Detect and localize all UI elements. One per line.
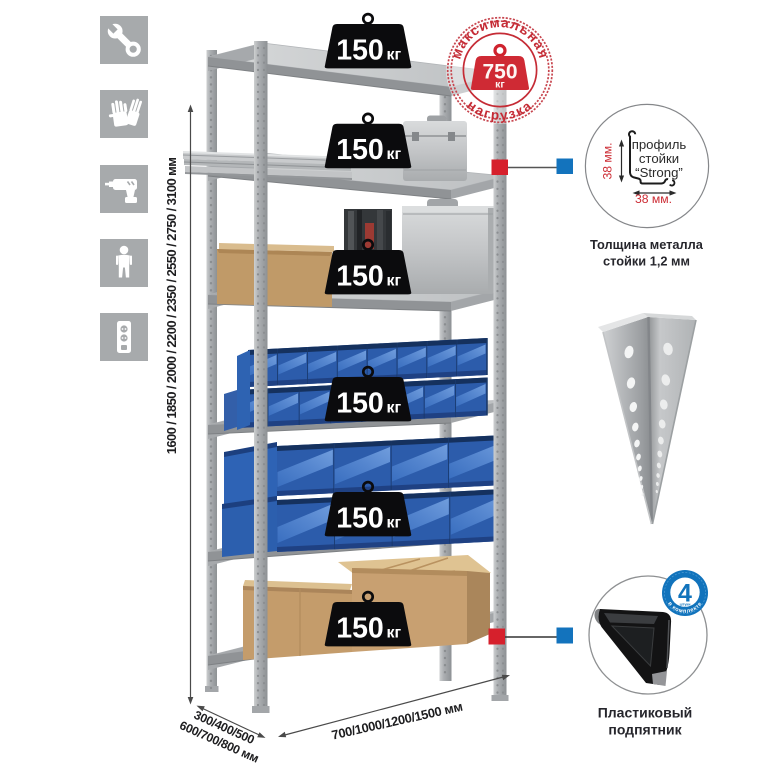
svg-text:подпятник: подпятник xyxy=(608,722,682,738)
svg-text:150: 150 xyxy=(336,387,384,419)
svg-text:кг: кг xyxy=(387,146,402,163)
svg-text:кг: кг xyxy=(387,272,402,289)
svg-text:38 мм.: 38 мм. xyxy=(601,142,615,179)
svg-text:Толщина металла: Толщина металла xyxy=(590,237,704,252)
svg-text:кг: кг xyxy=(387,46,402,63)
svg-text:профиль: профиль xyxy=(632,137,687,152)
svg-text:“Strong”: “Strong” xyxy=(635,165,683,180)
svg-text:штуки: штуки xyxy=(680,603,691,607)
svg-text:150: 150 xyxy=(336,134,384,166)
svg-text:кг: кг xyxy=(495,79,505,91)
svg-text:150: 150 xyxy=(336,502,384,534)
svg-text:кг: кг xyxy=(387,624,402,641)
svg-text:стойки 1,2 мм: стойки 1,2 мм xyxy=(603,254,690,269)
svg-text:стойки: стойки xyxy=(639,151,679,166)
svg-text:1600 / 1850 / 2000 / 2200 / 23: 1600 / 1850 / 2000 / 2200 / 2350 / 2550 … xyxy=(164,158,179,454)
svg-text:150: 150 xyxy=(336,612,384,644)
svg-text:Пластиковый: Пластиковый xyxy=(598,705,693,721)
svg-text:38 мм.: 38 мм. xyxy=(635,192,672,206)
svg-text:150: 150 xyxy=(336,34,384,66)
svg-text:кг: кг xyxy=(387,514,402,531)
svg-text:150: 150 xyxy=(336,260,384,292)
svg-text:кг: кг xyxy=(387,399,402,416)
